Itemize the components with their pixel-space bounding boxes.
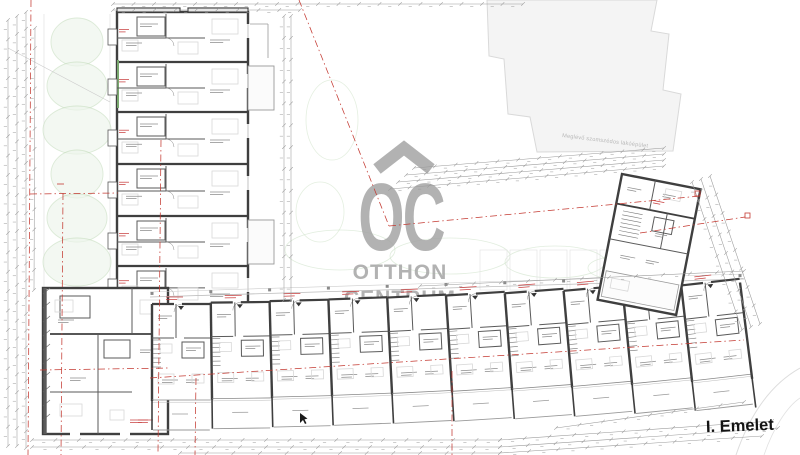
apartment-unit	[446, 285, 513, 421]
floorplan-svg: OC OTTHON CENTRUM Meglévő szomszédos lak…	[0, 0, 800, 455]
floor-label: I. Emelet	[706, 416, 775, 436]
level-marker-icon	[300, 413, 308, 424]
apartment-unit	[328, 290, 392, 425]
apartment-unit	[387, 288, 452, 424]
apartment-unit	[504, 282, 573, 419]
left-wing-block	[108, 8, 274, 308]
apartment-unit	[680, 272, 753, 411]
watermark-line1: OTTHON	[353, 261, 448, 284]
floorplan-canvas: OC OTTHON CENTRUM Meglévő szomszédos lak…	[0, 0, 800, 455]
apartment-unit	[211, 295, 271, 429]
apartment-unit	[269, 293, 331, 427]
